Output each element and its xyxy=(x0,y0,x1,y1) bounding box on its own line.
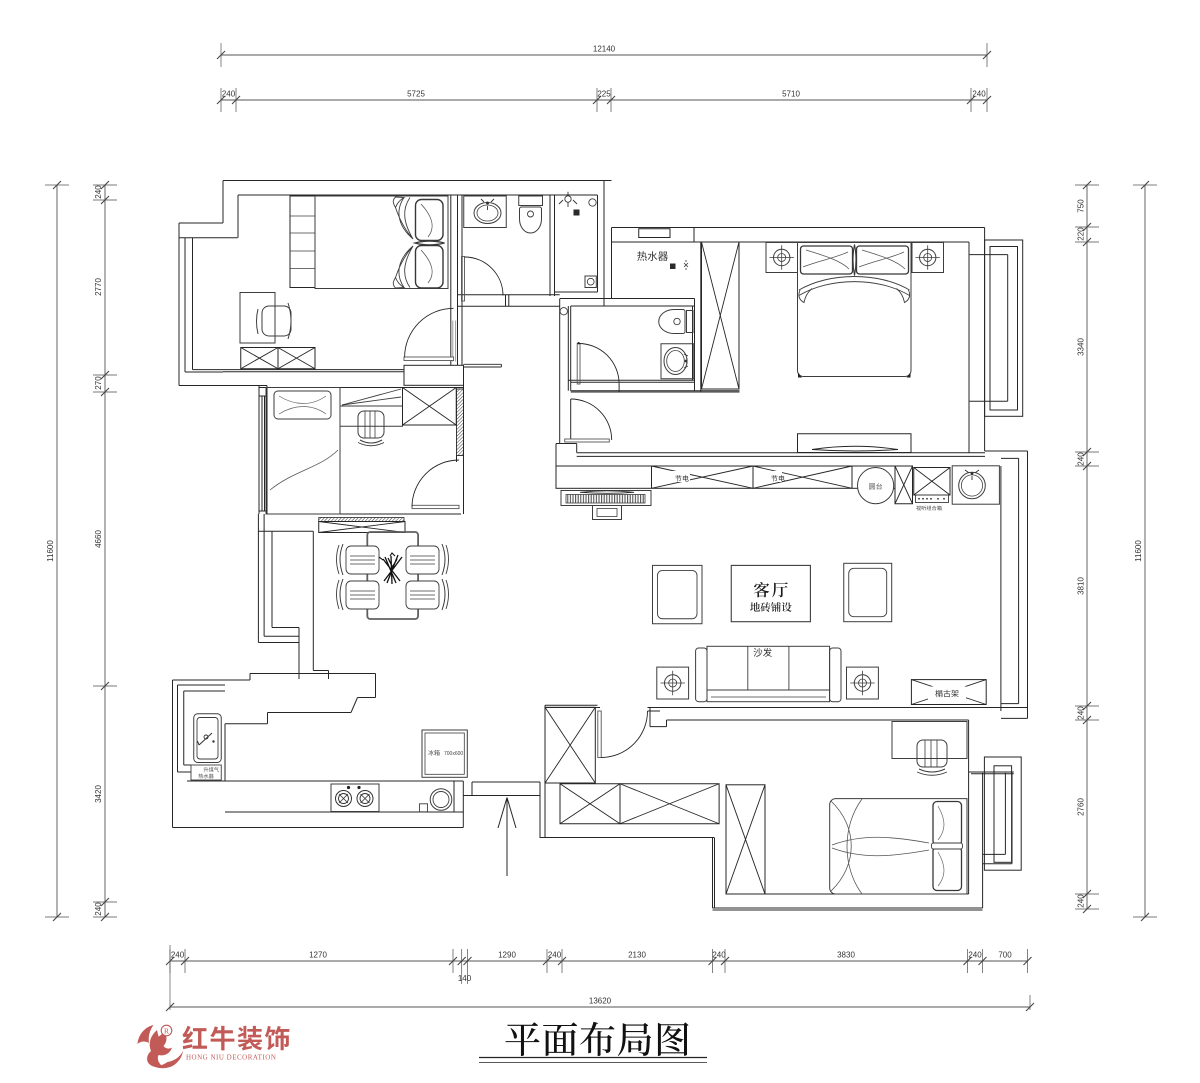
svg-text:700: 700 xyxy=(998,951,1012,960)
svg-text:3830: 3830 xyxy=(837,951,855,960)
svg-text:4660: 4660 xyxy=(94,530,103,548)
svg-text:11600: 11600 xyxy=(1134,540,1143,562)
svg-text:700x600: 700x600 xyxy=(444,751,463,757)
svg-text:240: 240 xyxy=(712,951,726,960)
svg-text:240: 240 xyxy=(1077,894,1086,908)
svg-text:3420: 3420 xyxy=(94,785,103,803)
svg-text:5710: 5710 xyxy=(782,90,800,99)
svg-text:240: 240 xyxy=(222,90,236,99)
svg-text:13620: 13620 xyxy=(589,997,612,1006)
svg-text:11600: 11600 xyxy=(46,540,55,562)
svg-text:HONG NIU DECORATION: HONG NIU DECORATION xyxy=(186,1054,276,1062)
svg-text:220: 220 xyxy=(1077,227,1086,241)
svg-text:2760: 2760 xyxy=(1077,798,1086,816)
svg-text:240: 240 xyxy=(548,951,562,960)
svg-text:270: 270 xyxy=(94,376,103,390)
svg-text:750: 750 xyxy=(1077,199,1086,213)
svg-text:240: 240 xyxy=(171,951,185,960)
svg-text:1290: 1290 xyxy=(498,951,516,960)
svg-text:2130: 2130 xyxy=(628,951,646,960)
svg-text:R: R xyxy=(164,1027,169,1036)
svg-text:240: 240 xyxy=(94,902,103,916)
svg-text:1270: 1270 xyxy=(309,951,327,960)
svg-text:12140: 12140 xyxy=(593,45,616,54)
svg-text:240: 240 xyxy=(1077,706,1086,720)
svg-text:240: 240 xyxy=(968,951,982,960)
svg-text:240: 240 xyxy=(972,90,986,99)
svg-text:3810: 3810 xyxy=(1077,577,1086,595)
svg-text:240: 240 xyxy=(94,185,103,199)
svg-text:5725: 5725 xyxy=(407,90,425,99)
svg-text:225: 225 xyxy=(597,90,611,99)
svg-text:3340: 3340 xyxy=(1077,338,1086,356)
svg-text:240: 240 xyxy=(1077,452,1086,466)
svg-text:2770: 2770 xyxy=(94,278,103,296)
svg-text:140: 140 xyxy=(458,974,472,983)
